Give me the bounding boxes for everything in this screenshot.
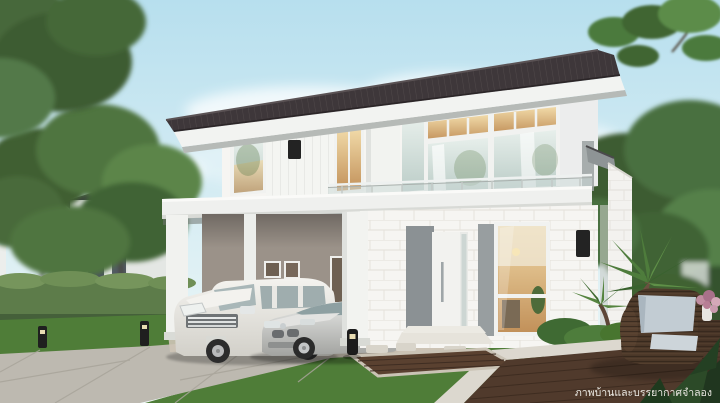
pendant-lamp (512, 248, 520, 256)
house-rendering-image: ภาพบ้านและบรรยากาศจำลอง (0, 0, 720, 403)
sedan-emblem (280, 323, 286, 329)
living-window (494, 222, 550, 336)
gray-pilaster (478, 224, 494, 336)
sedan-headlight (264, 321, 280, 328)
caption-text: ภาพบ้านและบรรยากาศจำลอง (575, 387, 712, 399)
minivan-side-glass (260, 286, 326, 309)
minivan-headlight (240, 306, 255, 314)
bollard-light (140, 321, 149, 346)
sedan-grille (272, 330, 284, 338)
front-door (432, 232, 460, 332)
porch-step (396, 332, 494, 344)
corner-pillar (340, 211, 370, 346)
wall-sconce-upper-icon (288, 140, 301, 159)
door-recess (406, 226, 434, 332)
scene-canvas: ภาพบ้านและบรรยากาศจำลอง (0, 0, 720, 403)
wall-sconce-entrance-icon (576, 230, 590, 257)
rattan-armchair (620, 288, 704, 364)
bollard-light (38, 326, 47, 348)
door-handle (441, 262, 444, 302)
interior-plant (531, 286, 545, 314)
